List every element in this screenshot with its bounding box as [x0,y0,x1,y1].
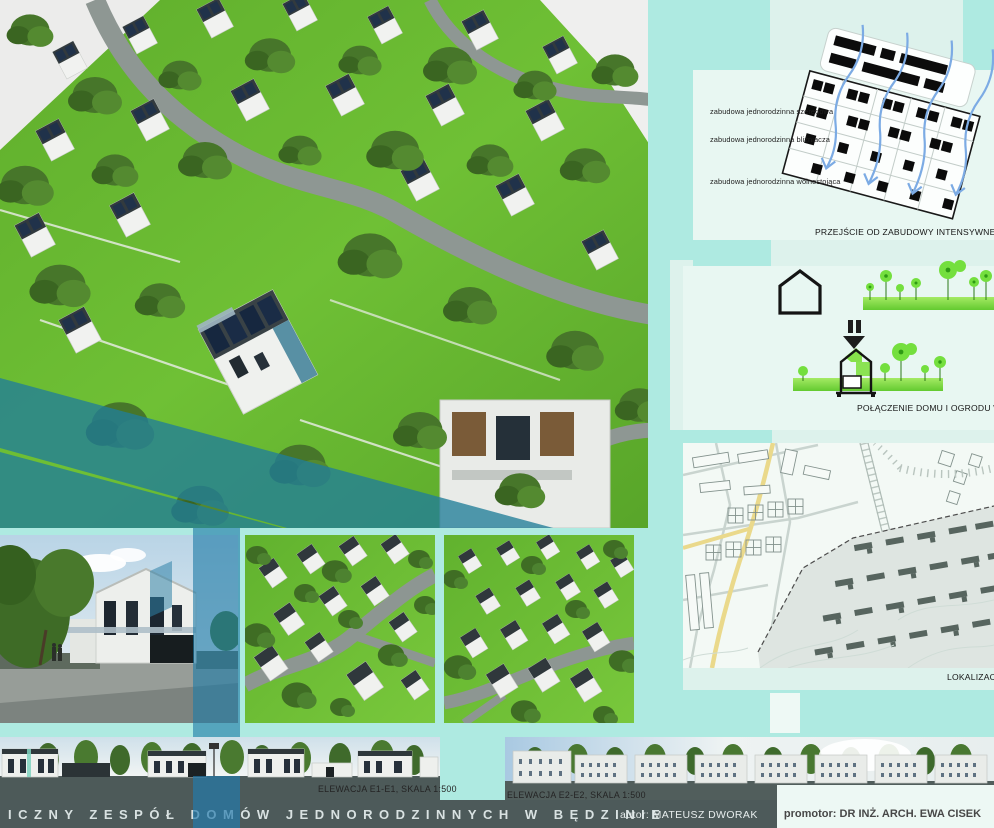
typology-label-terraced: zabudowa jednorodzinna szeregowa [710,107,833,116]
author-credit: autor: MATEUSZ DWORAK [620,809,758,821]
project-title: ICZNY ZESPÓŁ DOMÓW JEDNORODZINNYCH W BĘD… [8,807,666,822]
promoter-credit: promotor: DR INŻ. ARCH. EWA CISEK [777,808,988,820]
typology-label-semi-detached: zabudowa jednorodzinna bliźniacza [710,135,830,144]
typology-caption: PRZEJŚCIE OD ZABUDOWY INTENSYWNEJ DO E [815,227,994,237]
vertical-accent-band-upper [193,528,240,737]
vertical-accent-band-lower [193,776,240,828]
elevation-e1-label: ELEWACJA E1-E1, SKALA 1:500 [318,784,457,794]
right-panel-column [648,0,994,828]
aerial-render-3 [444,535,634,723]
main-aerial-render [0,0,653,528]
footer-title-bar: ICZNY ZESPÓŁ DOMÓW JEDNORODZINNYCH W BĘD… [0,800,777,828]
site-plan-caption: LOKALIZACJA [947,672,994,682]
elevation-e2-label: ELEWACJA E2-E2, SKALA 1:500 [507,790,646,800]
aerial-render-2 [245,535,435,723]
typology-label-detached: zabudowa jednorodzinna wolnostojąca [710,177,840,186]
house-garden-caption: POŁĄCZENIE DOMU I OGRODU W JED [857,403,994,413]
white-patch [770,693,800,733]
presentation-board: zabudowa jednorodzinna szeregowa zabudow… [0,0,994,828]
promoter-box: promotor: DR INŻ. ARCH. EWA CISEK [777,785,994,828]
